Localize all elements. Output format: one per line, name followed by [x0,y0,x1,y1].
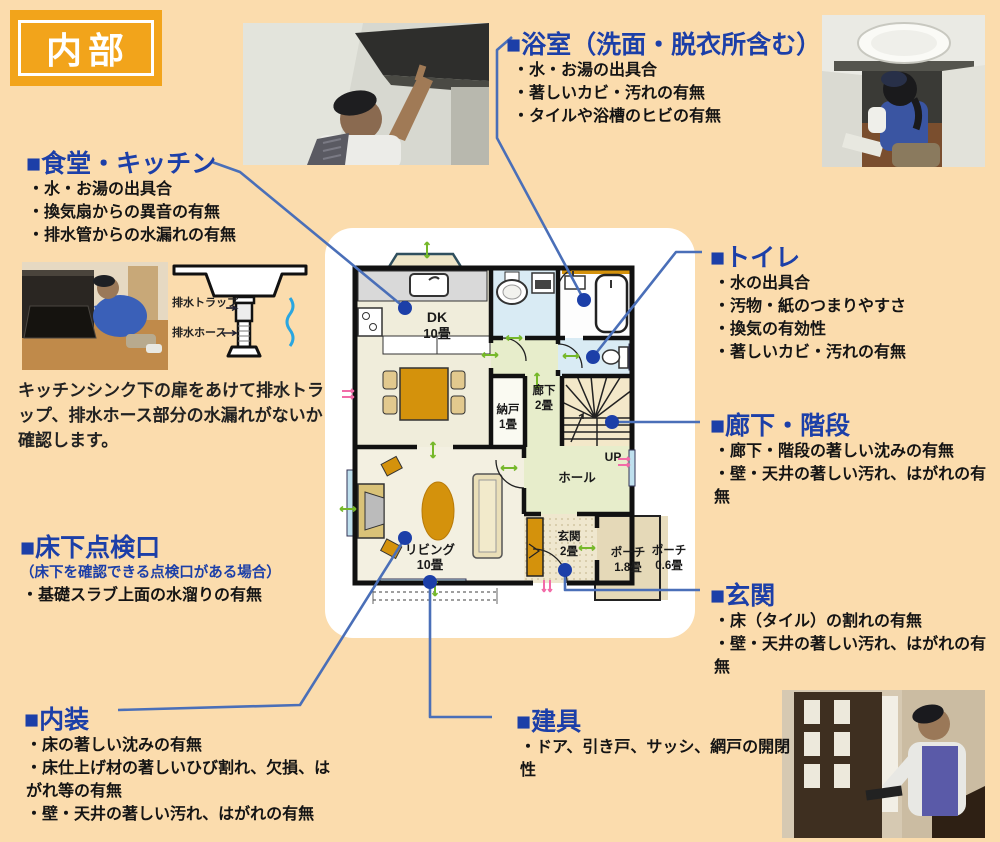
hall-window [629,450,635,486]
section-title-toilet: ■トイレ [710,238,800,274]
dk-size: 10畳 [423,326,450,341]
photo-kitchen-sink-inspection [22,262,168,370]
trap-label: 排水トラップ [172,295,239,309]
porch1-label: ポーチ [611,545,646,559]
hall-label: ホール [558,471,596,485]
section-title-bathroom: ■浴室（洗面・脱衣所含む） [506,25,821,61]
photo-door-inspection [782,690,985,838]
water-brace [287,298,293,346]
sink-basin [174,266,306,296]
inspector-vest [922,746,958,816]
section-items-underfloor: ・基礎スラブ上面の水溜りの有無 [22,584,322,607]
porch2-label: ポーチ [652,543,687,557]
porch1-size: 1.8畳 [614,561,642,574]
section-items-toilet: ・水の出具合 ・汚物・紙のつまりやすさ ・換気の有効性 ・著しいカビ・汚れの有無 [714,272,984,364]
hose-label: 排水ホース [172,325,226,339]
interior-badge-label: 内部 [18,20,154,76]
section-items-hallway-stairs: ・廊下・階段の著しい沈みの有無 ・壁・天井の著しい汚れ、はがれの有無 [714,440,999,509]
section-items-interior: ・床の著しい沈みの有無 ・床仕上げ材の著しいひび割れ、欠損、はがれ等の有無 ・壁… [26,734,336,826]
section-title-entrance: ■玄関 [710,576,775,612]
interior-badge: 内部 [10,10,162,86]
corridor-label: 廊下 [533,383,556,397]
entrance-fixtures [527,518,543,576]
section-items-bathroom: ・水・お湯の出具合 ・著しいカビ・汚れの有無 ・タイルや浴槽のヒビの有無 [513,59,783,128]
dk-label: DK [427,309,447,325]
porch2-size: 0.6畳 [655,559,683,572]
section-items-entrance: ・床（タイル）の割れの有無 ・壁・天井の著しい汚れ、はがれの有無 [714,610,999,679]
floor-plan: DK 10畳 納戸 1畳 廊下 2畳 ホール UP リビング 10畳 玄関 2畳… [325,228,695,638]
drain-hose [238,321,250,347]
section-items-dining-kitchen: ・水・お湯の出具合 ・換気扇からの異音の有無 ・排水管からの水漏れの有無 [28,178,268,247]
up-label: UP [605,450,622,464]
section-note-underfloor: （床下を確認できる点検口がある場合） [20,561,281,582]
living-size: 10畳 [417,558,444,572]
entrance-size: 2畳 [560,545,578,558]
corridor-size: 2畳 [535,399,553,412]
section-title-interior: ■内装 [24,700,89,736]
closet-size: 1畳 [499,418,517,431]
section-title-dining-kitchen: ■食堂・キッチン [26,144,216,180]
entrance-label: 玄関 [558,529,581,543]
section-title-underfloor: ■床下点検口 [20,528,160,564]
photo-basin-inspection [822,15,985,167]
photo-range-hood-inspection [243,23,489,165]
drain-trap [236,303,252,321]
sink-diagram: 排水トラップ 排水ホース [170,256,310,368]
closet-label: 納戸 [497,402,520,416]
floor-plan-panel: DK 10畳 納戸 1畳 廊下 2畳 ホール UP リビング 10畳 玄関 2畳… [325,228,695,638]
section-title-hallway-stairs: ■廊下・階段 [710,406,850,442]
section-items-fittings: ・ドア、引き戸、サッシ、網戸の開閉性 [520,736,805,782]
living-label: リビング [405,542,456,557]
section-title-fittings: ■建具 [516,702,581,738]
kitchen-sink-note: キッチンシンク下の扉をあけて排水トラップ、排水ホース部分の水漏れがないか確認しま… [18,378,332,453]
